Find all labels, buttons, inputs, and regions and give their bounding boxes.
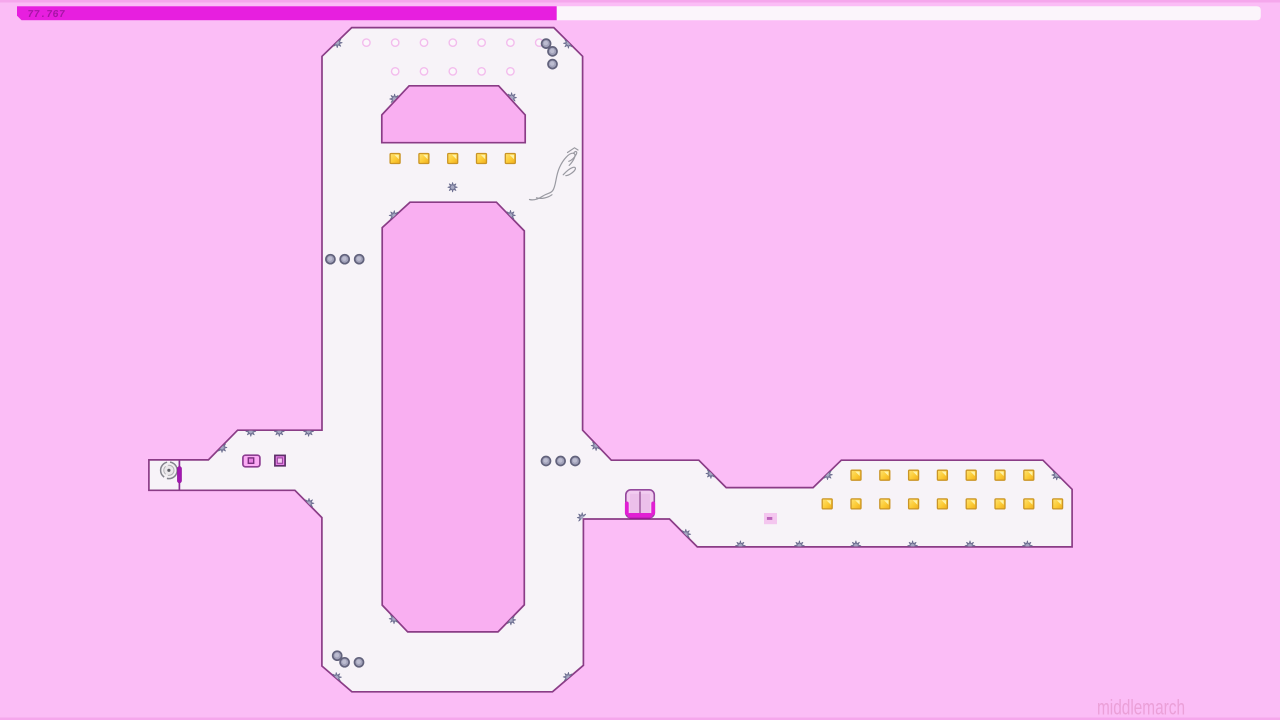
svg-text:77.767: 77.767 (27, 9, 66, 21)
svg-text:middlemarch: middlemarch (1097, 697, 1185, 720)
